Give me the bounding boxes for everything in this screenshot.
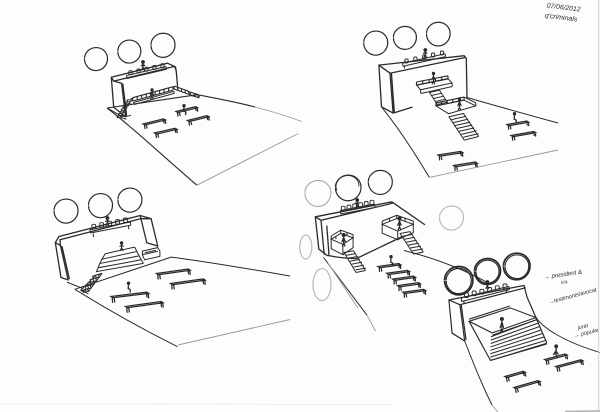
svg-text:→testimonis/avocat: →testimonis/avocat [548,287,598,306]
svg-text:07/06/2012: 07/06/2012 [546,3,581,14]
svg-text:q'criminals: q'criminals [544,13,578,24]
svg-text:cia.: cia. [560,279,569,286]
